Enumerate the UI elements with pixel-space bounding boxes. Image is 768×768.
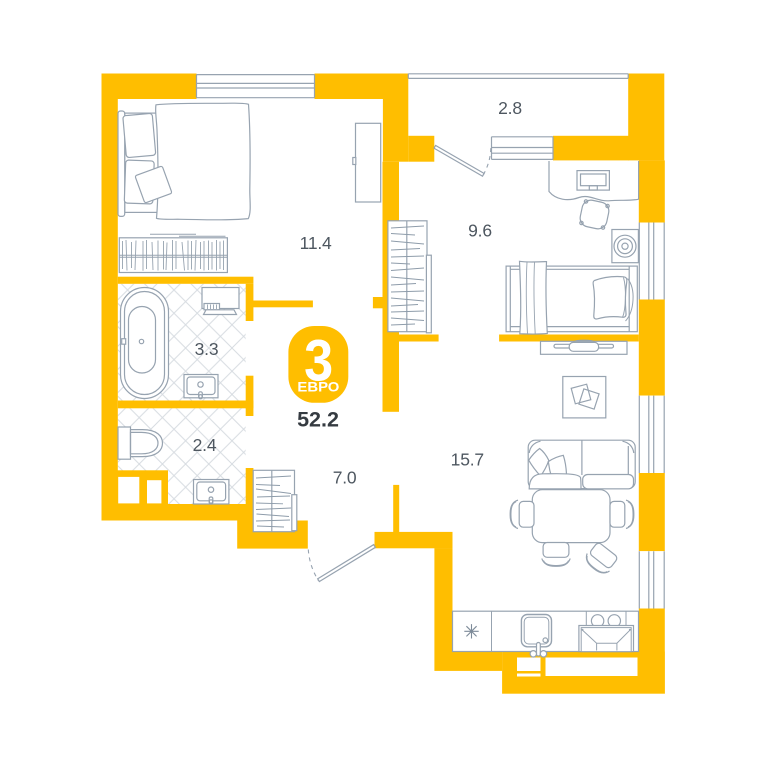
svg-text:11.4: 11.4: [300, 233, 332, 253]
svg-text:ЕВРО: ЕВРО: [297, 379, 339, 395]
svg-text:2.8: 2.8: [498, 98, 522, 118]
svg-text:2.4: 2.4: [193, 435, 217, 455]
svg-text:7.0: 7.0: [333, 467, 357, 487]
svg-text:9.6: 9.6: [468, 220, 492, 240]
svg-text:3.3: 3.3: [195, 339, 219, 359]
svg-text:52.2: 52.2: [297, 408, 339, 432]
svg-text:15.7: 15.7: [451, 450, 484, 470]
